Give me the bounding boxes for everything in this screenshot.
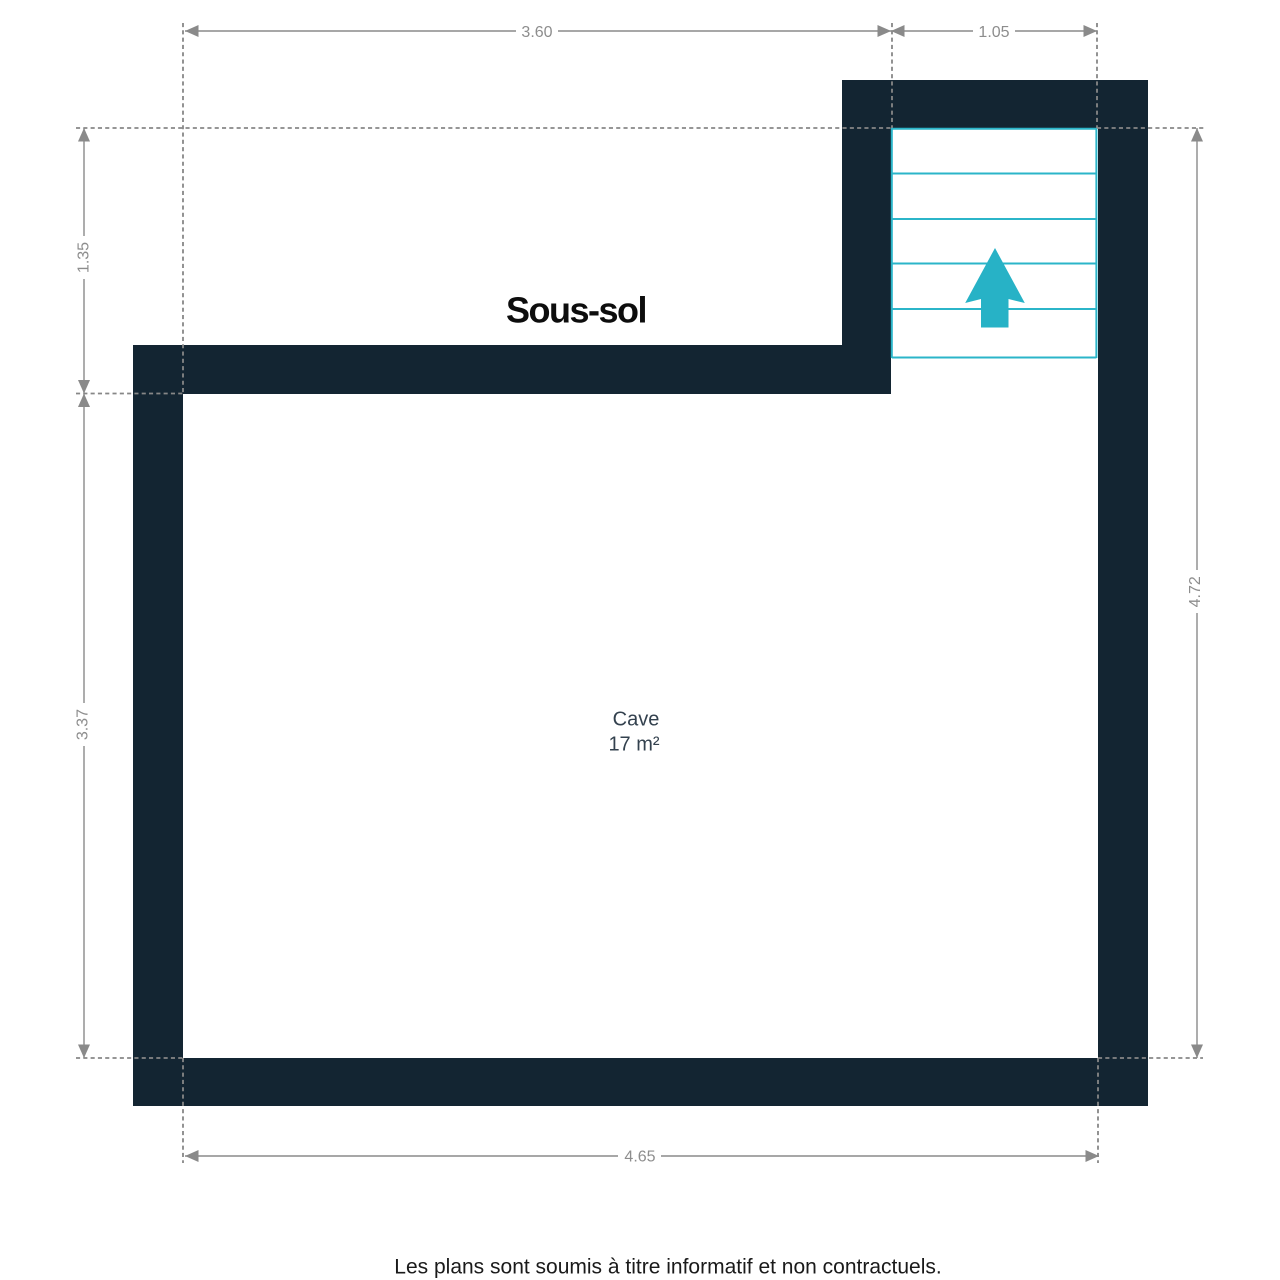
svg-text:4.72: 4.72: [1187, 576, 1204, 607]
svg-text:17 m²: 17 m²: [608, 734, 659, 756]
svg-text:Cave: Cave: [613, 709, 660, 731]
svg-text:1.05: 1.05: [978, 24, 1009, 41]
svg-text:Sous-sol: Sous-sol: [506, 289, 646, 330]
svg-text:Les plans sont soumis à titre: Les plans sont soumis à titre informatif…: [394, 1255, 941, 1278]
svg-text:3.37: 3.37: [75, 709, 92, 740]
svg-text:1.35: 1.35: [76, 242, 93, 273]
svg-text:4.65: 4.65: [624, 1149, 655, 1166]
svg-text:3.60: 3.60: [521, 24, 552, 41]
